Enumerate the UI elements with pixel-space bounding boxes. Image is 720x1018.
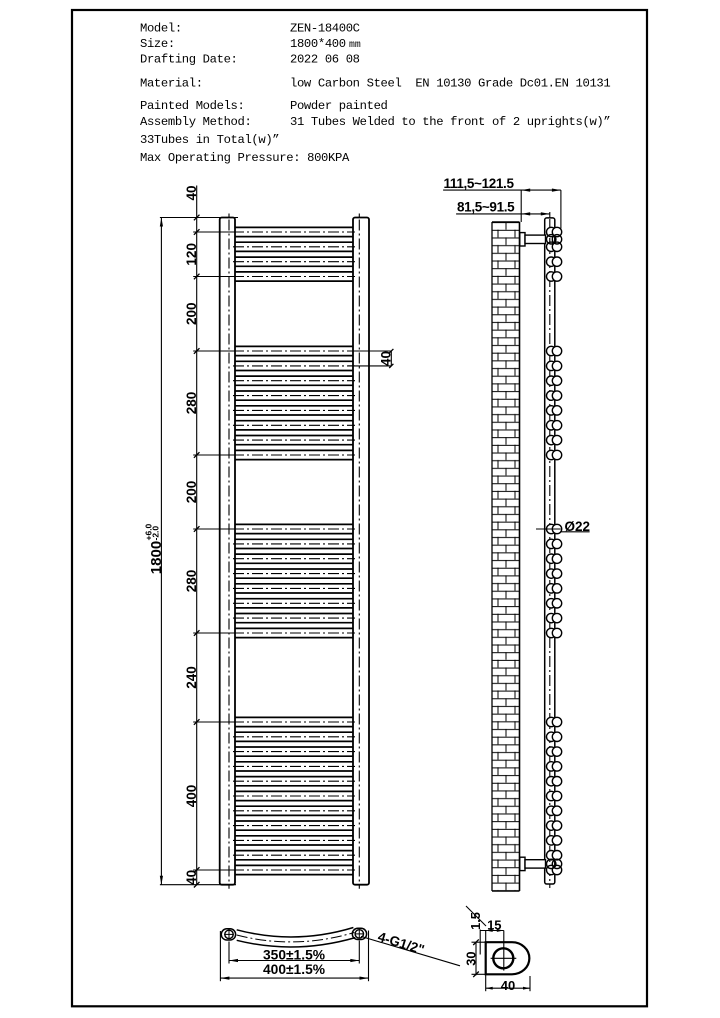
svg-text:350±1.5%: 350±1.5%	[263, 948, 325, 963]
svg-text:Size:: Size:	[140, 37, 175, 51]
svg-text:40: 40	[379, 351, 394, 366]
svg-text:Drafting Date:: Drafting Date:	[140, 53, 238, 67]
svg-text:120: 120	[184, 243, 199, 266]
svg-text:Material:: Material:	[140, 77, 203, 91]
svg-text:2022 06 08: 2022 06 08	[290, 53, 360, 67]
svg-text:15: 15	[487, 917, 501, 932]
svg-text:81,5~91.5: 81,5~91.5	[457, 200, 515, 215]
svg-text:400±1.5%: 400±1.5%	[263, 962, 325, 977]
svg-text:40: 40	[501, 978, 515, 993]
svg-text:200: 200	[184, 302, 199, 325]
svg-text:-2.0: -2.0	[150, 526, 160, 541]
svg-text:ZEN-18400C: ZEN-18400C	[290, 22, 360, 36]
svg-text:low Carbon Steel EN 10130 Gra: low Carbon Steel EN 10130 Grade Dc01.EN …	[290, 77, 610, 91]
svg-text:1800: 1800	[148, 541, 165, 574]
svg-text:111,5~121.5: 111,5~121.5	[444, 176, 515, 191]
svg-text:400: 400	[184, 785, 199, 808]
svg-text:40: 40	[184, 185, 199, 200]
svg-text:40: 40	[184, 870, 199, 885]
svg-text:Powder painted: Powder painted	[290, 99, 388, 113]
svg-text:280: 280	[184, 570, 199, 593]
svg-text:33Tubes in Total(w)”: 33Tubes in Total(w)”	[140, 133, 279, 147]
svg-text:31 Tubes Welded to the front o: 31 Tubes Welded to the front of 2 uprigh…	[290, 115, 610, 129]
svg-text:200: 200	[184, 481, 199, 504]
svg-text:280: 280	[184, 392, 199, 415]
svg-text:Ø22: Ø22	[565, 519, 591, 534]
svg-text:240: 240	[184, 666, 199, 689]
svg-text:1800*400: 1800*400	[290, 37, 346, 51]
svg-text:Assembly Method:: Assembly Method:	[140, 115, 251, 129]
svg-text:Model:: Model:	[140, 22, 182, 36]
svg-text:30: 30	[463, 951, 478, 965]
svg-text:Painted Models:: Painted Models:	[140, 99, 244, 113]
svg-text:Max Operating Pressure: 800KPA: Max Operating Pressure: 800KPA	[140, 151, 350, 165]
svg-text:mm: mm	[349, 39, 361, 50]
